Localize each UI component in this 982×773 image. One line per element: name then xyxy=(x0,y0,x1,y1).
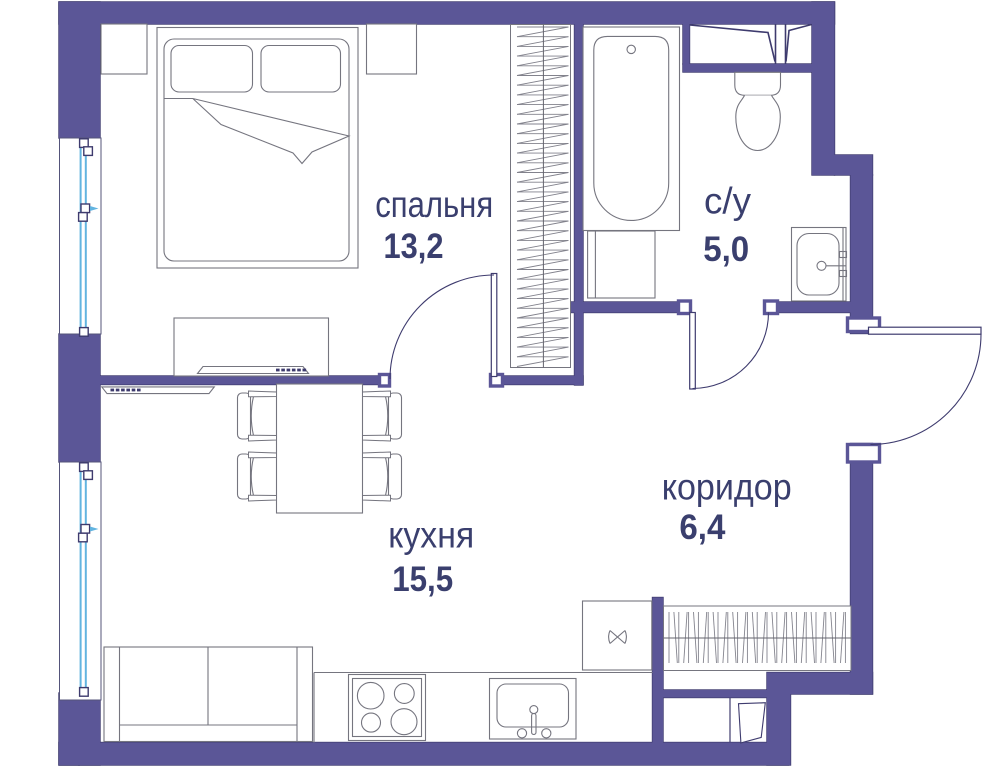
svg-text:кухня: кухня xyxy=(388,515,474,556)
svg-text:13,2: 13,2 xyxy=(384,227,444,266)
svg-text:5,0: 5,0 xyxy=(703,230,749,269)
svg-text:спальня: спальня xyxy=(375,184,493,225)
svg-text:с/у: с/у xyxy=(704,181,751,222)
svg-text:6,4: 6,4 xyxy=(679,508,726,547)
svg-text:15,5: 15,5 xyxy=(392,560,453,599)
svg-text:коридор: коридор xyxy=(662,467,792,508)
